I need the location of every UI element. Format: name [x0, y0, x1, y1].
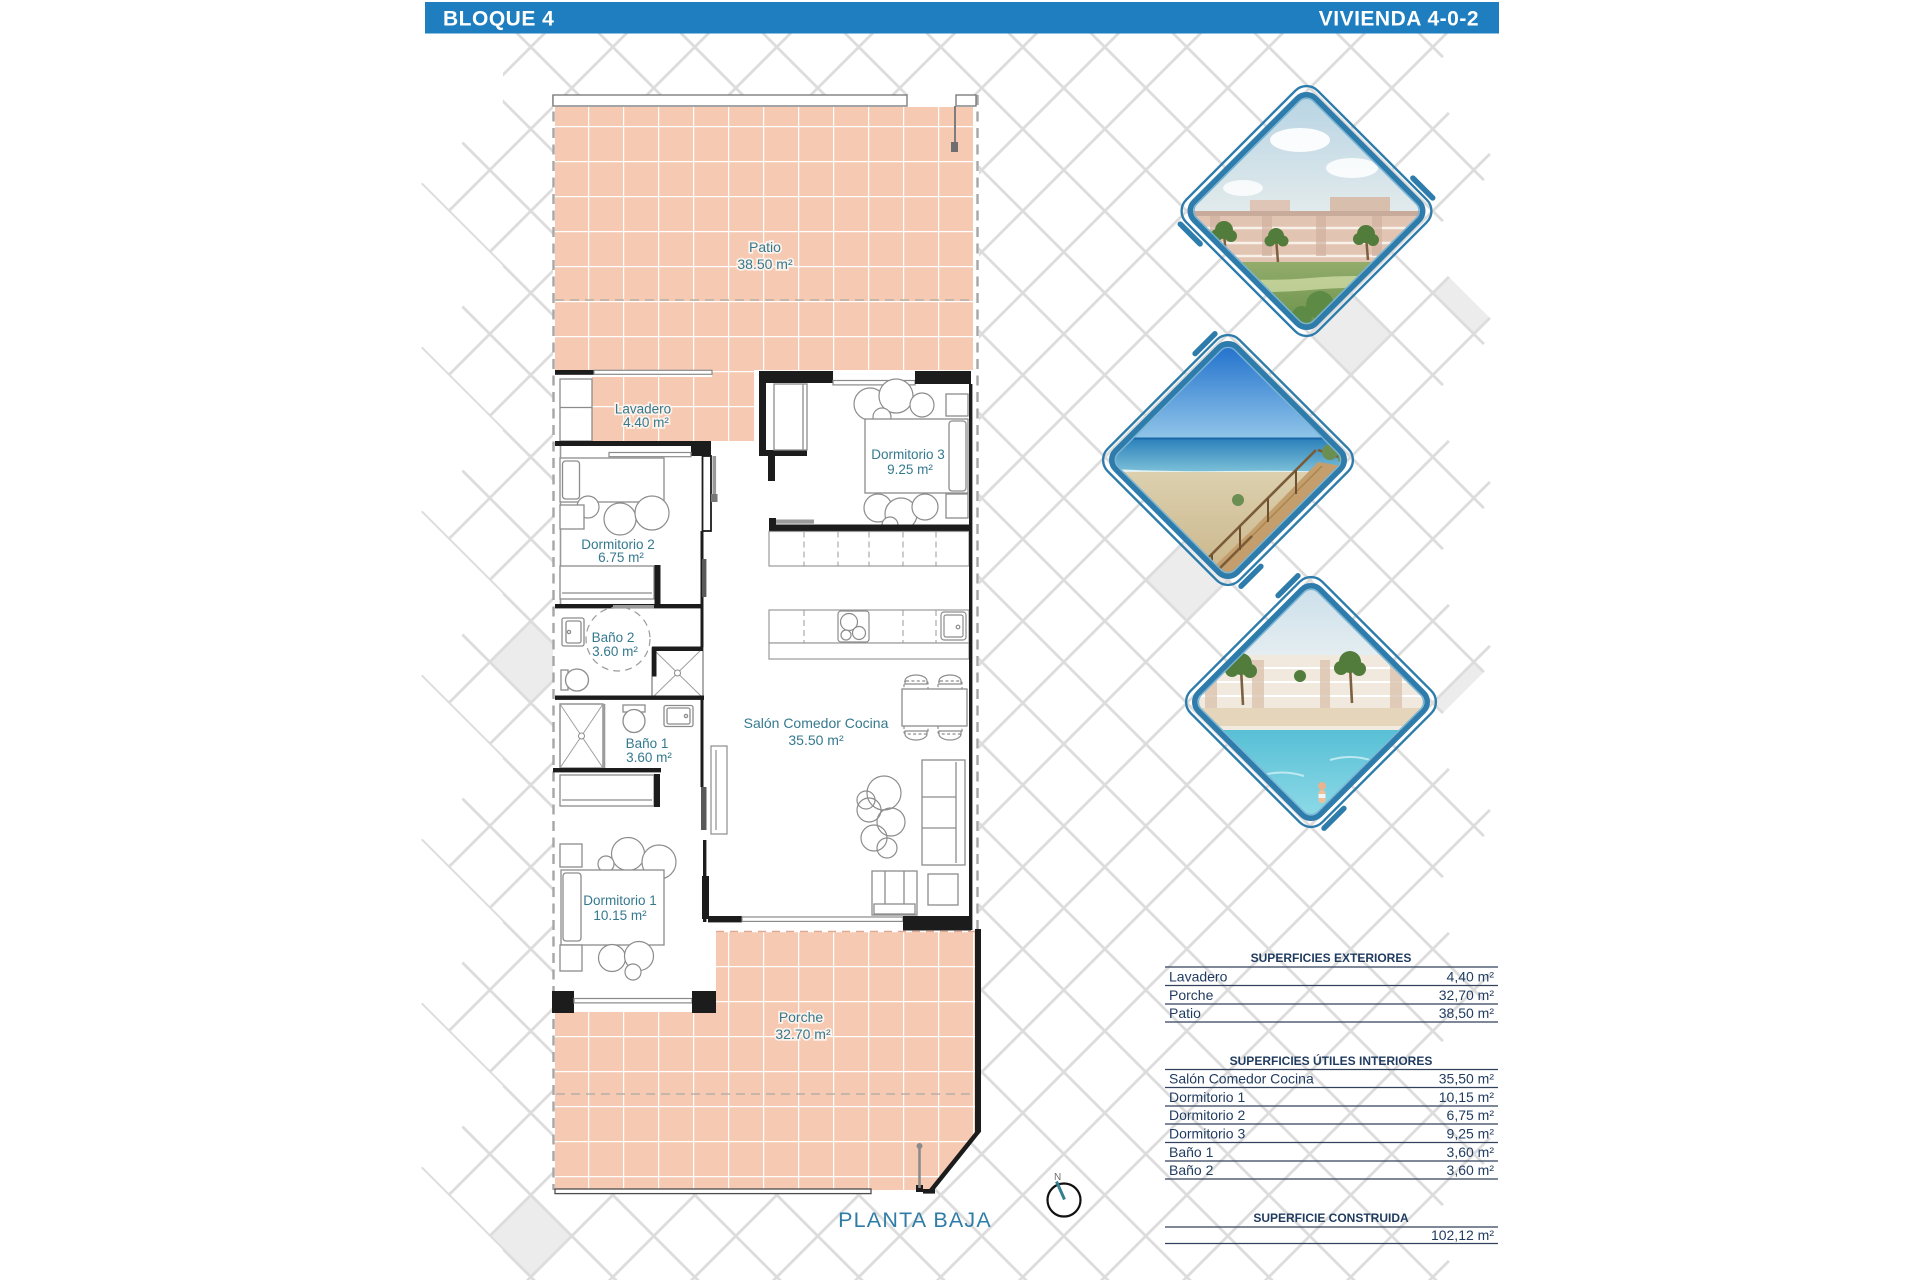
svg-text:Salón Comedor Cocina: Salón Comedor Cocina [744, 715, 889, 731]
svg-text:Dormitorio 1: Dormitorio 1 [583, 893, 657, 908]
svg-text:PLANTA BAJA: PLANTA BAJA [838, 1208, 992, 1232]
svg-text:9,25 m²: 9,25 m² [1447, 1126, 1495, 1142]
svg-text:3.60 m²: 3.60 m² [626, 750, 672, 765]
svg-text:SUPERFICIE CONSTRUIDA: SUPERFICIE CONSTRUIDA [1253, 1211, 1409, 1225]
svg-text:Patio: Patio [749, 239, 781, 255]
svg-text:10,15 m²: 10,15 m² [1439, 1089, 1495, 1105]
svg-text:38.50 m²: 38.50 m² [737, 256, 793, 272]
svg-text:Porche: Porche [779, 1009, 824, 1025]
svg-text:3.60 m²: 3.60 m² [592, 644, 638, 659]
svg-text:4.40 m²: 4.40 m² [623, 415, 669, 430]
svg-text:Salón Comedor Cocina: Salón Comedor Cocina [1169, 1071, 1314, 1087]
svg-text:9.25 m²: 9.25 m² [887, 462, 933, 477]
svg-text:BLOQUE 4: BLOQUE 4 [443, 8, 554, 31]
svg-text:Lavadero: Lavadero [1169, 969, 1228, 985]
svg-text:10.15 m²: 10.15 m² [593, 908, 647, 923]
svg-text:VIVIENDA 4-0-2: VIVIENDA 4-0-2 [1319, 8, 1479, 31]
svg-text:3,60 m²: 3,60 m² [1447, 1162, 1495, 1178]
svg-text:SUPERFICIES ÚTILES INTERIORES: SUPERFICIES ÚTILES INTERIORES [1230, 1053, 1433, 1068]
svg-text:Dormitorio 1: Dormitorio 1 [1169, 1089, 1245, 1105]
svg-text:32,70 m²: 32,70 m² [1439, 987, 1495, 1003]
svg-text:6.75 m²: 6.75 m² [598, 550, 644, 565]
svg-text:Dormitorio 2: Dormitorio 2 [1169, 1107, 1245, 1123]
svg-text:Baño 2: Baño 2 [1169, 1162, 1214, 1178]
svg-text:SUPERFICIES EXTERIORES: SUPERFICIES EXTERIORES [1251, 951, 1412, 965]
svg-text:102,12 m²: 102,12 m² [1431, 1227, 1494, 1243]
svg-text:Patio: Patio [1169, 1005, 1201, 1021]
svg-text:3,60 m²: 3,60 m² [1447, 1144, 1495, 1160]
svg-text:Baño 2: Baño 2 [592, 630, 635, 645]
svg-text:Baño 1: Baño 1 [626, 736, 669, 751]
svg-text:Dormitorio 3: Dormitorio 3 [1169, 1126, 1245, 1142]
svg-text:32.70 m²: 32.70 m² [775, 1026, 831, 1042]
svg-text:4,40 m²: 4,40 m² [1447, 969, 1495, 985]
svg-text:Baño 1: Baño 1 [1169, 1144, 1214, 1160]
svg-text:38,50 m²: 38,50 m² [1439, 1005, 1495, 1021]
svg-text:Porche: Porche [1169, 987, 1214, 1003]
svg-text:Dormitorio 3: Dormitorio 3 [871, 447, 945, 462]
svg-text:35,50 m²: 35,50 m² [1439, 1071, 1495, 1087]
svg-text:35.50 m²: 35.50 m² [788, 732, 844, 748]
svg-text:6,75 m²: 6,75 m² [1447, 1107, 1495, 1123]
